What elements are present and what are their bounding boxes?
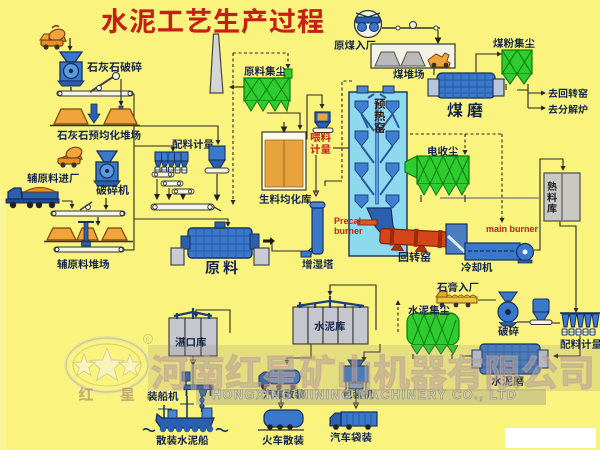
svg-text:Precal: Precal bbox=[334, 216, 361, 226]
svg-text:HONGXING MINING MACHINERY CO.,: HONGXING MINING MACHINERY CO., LTD bbox=[212, 388, 518, 402]
svg-text:R: R bbox=[146, 337, 151, 344]
svg-text:main burner: main burner bbox=[486, 224, 539, 234]
svg-text:burner: burner bbox=[334, 226, 363, 236]
